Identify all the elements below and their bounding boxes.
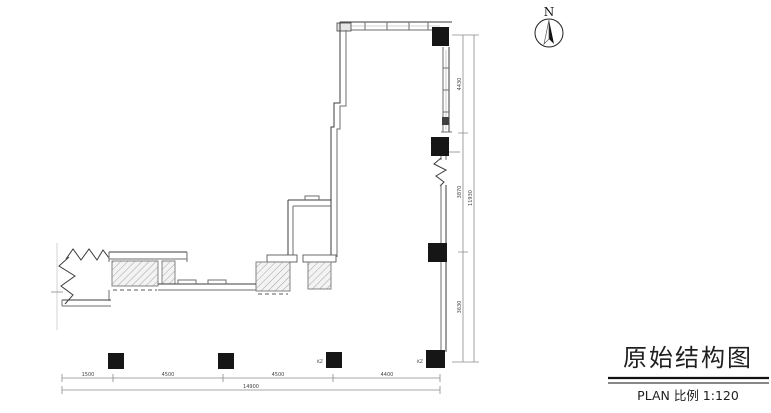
- floor-plan-drawing: KZ KZ 4430 3870 3630 11930: [0, 0, 771, 413]
- masonry-piers: [256, 255, 336, 294]
- column-tag: KZ: [317, 359, 323, 365]
- structural-columns: KZ KZ: [108, 27, 449, 369]
- dim-total-label: 11930: [468, 190, 474, 206]
- north-compass: N: [535, 5, 563, 47]
- compass-needle-dark: [549, 20, 554, 44]
- break-line-top: [66, 249, 109, 260]
- dim-label: 3870: [457, 186, 463, 199]
- pier-cap: [303, 255, 336, 262]
- column: [428, 243, 447, 262]
- dim-label: 4430: [457, 78, 463, 91]
- scale-label: PLAN 比例 1:120: [637, 388, 739, 403]
- alcove-step-wall: [288, 196, 331, 257]
- column: [326, 352, 342, 368]
- hatched-pier: [162, 261, 175, 284]
- dim-label: 4500: [272, 372, 285, 378]
- lower-wing-walls: [51, 243, 256, 330]
- break-line-right: [434, 158, 446, 186]
- left-wall: [331, 22, 346, 257]
- dim-label: 4400: [381, 372, 394, 378]
- hatched-wall: [112, 261, 158, 286]
- compass-needle-light: [544, 20, 549, 44]
- column: [432, 27, 449, 46]
- break-line-left: [59, 257, 75, 304]
- dimension-right: 4430 3870 3630 11930: [452, 35, 479, 362]
- window-sill-notch: [178, 280, 196, 284]
- column: [426, 350, 445, 368]
- hatched-pier: [308, 262, 331, 289]
- column: [108, 353, 124, 369]
- hatched-pier: [256, 262, 290, 291]
- column-tag: KZ: [417, 359, 423, 365]
- column: [431, 137, 449, 156]
- sheet-title: 原始结构图: [623, 344, 753, 372]
- pier-cap: [267, 255, 297, 262]
- window-sill-notch: [208, 280, 226, 284]
- column: [218, 353, 234, 369]
- north-label: N: [544, 5, 555, 19]
- dimension-bottom: 1500 4500 4500 4400 14900: [62, 372, 440, 394]
- drawing-sheet: KZ KZ 4430 3870 3630 11930: [0, 0, 771, 413]
- title-block: 原始结构图 PLAN 比例 1:120: [608, 344, 769, 403]
- dim-total-label: 14900: [243, 384, 259, 390]
- dim-label: 4500: [162, 372, 175, 378]
- wall-end-cap: [337, 23, 351, 31]
- dim-label: 3630: [457, 301, 463, 314]
- window-wall-right: [441, 47, 452, 132]
- dim-label: 1500: [82, 372, 95, 378]
- top-room-walls: [288, 22, 452, 257]
- mullion-block: [442, 117, 449, 125]
